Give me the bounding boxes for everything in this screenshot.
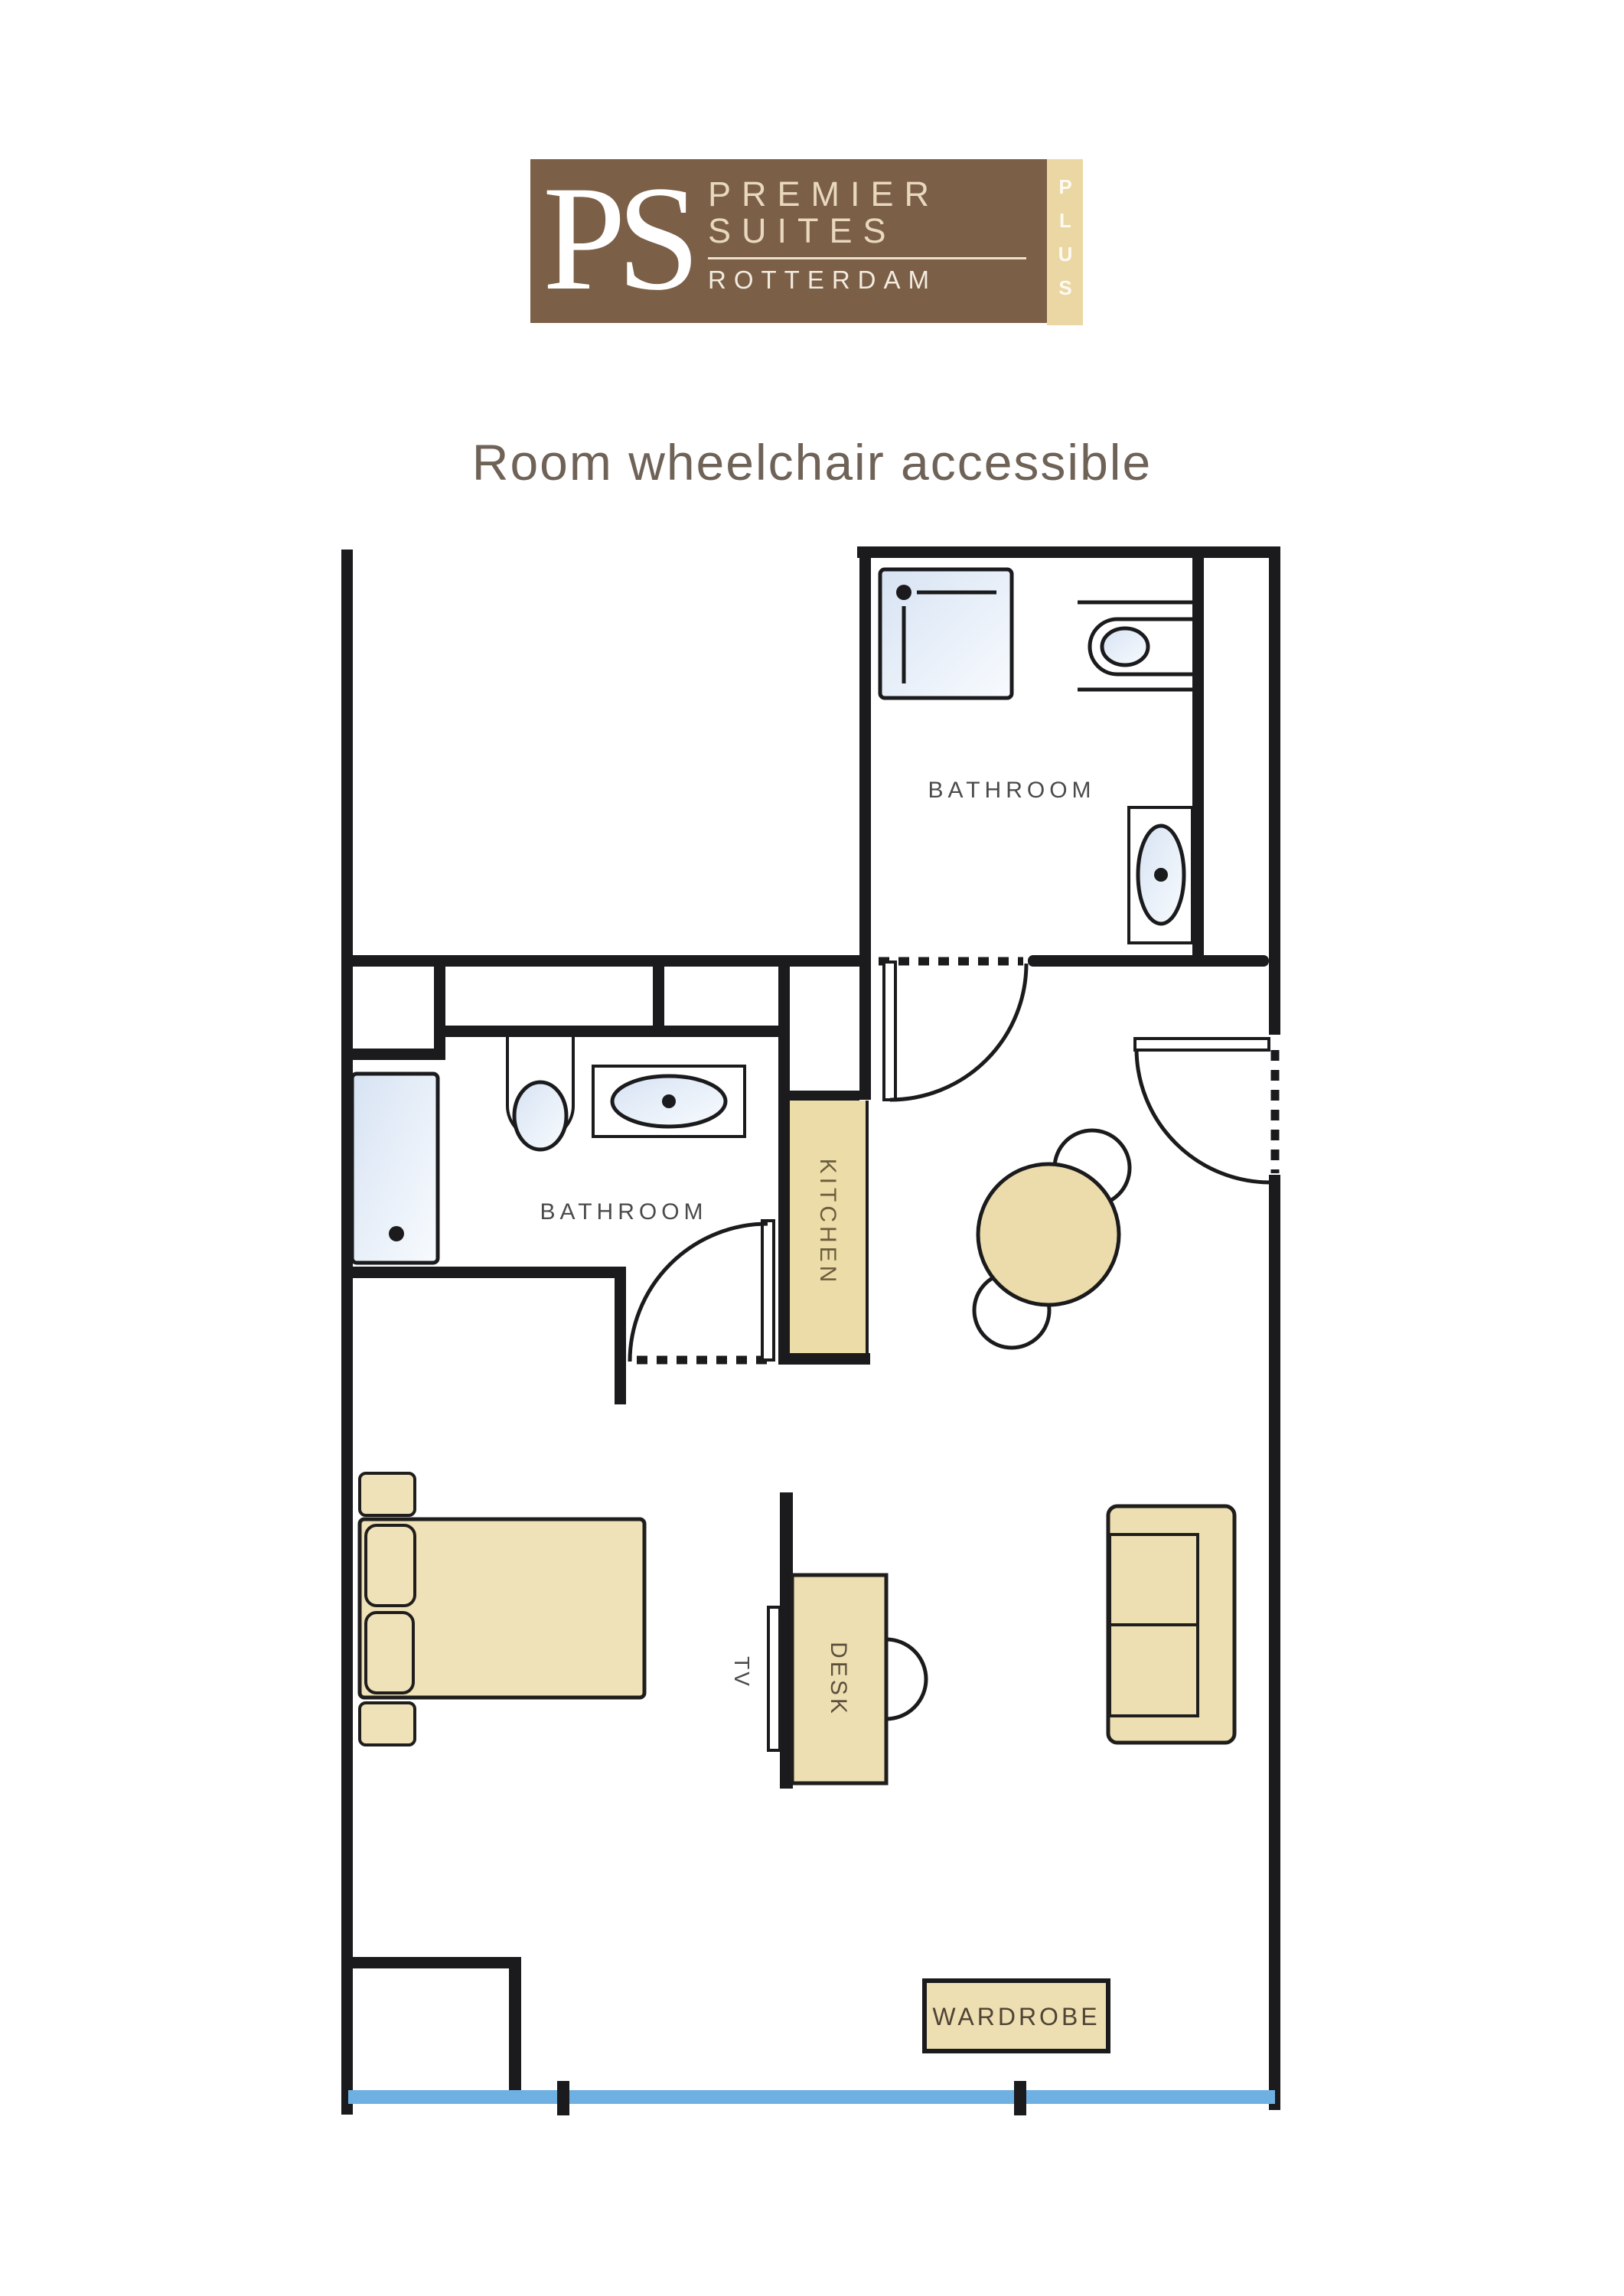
door-arc-bathroom-top <box>890 964 1026 1100</box>
page: PS PREMIER SUITES ROTTERDAM PLUS Room wh… <box>0 0 1624 2296</box>
wall-bathroom-top-left <box>859 546 871 1100</box>
wall-duct-divider <box>653 967 664 1026</box>
bed-group <box>360 1473 644 1745</box>
label-bathroom-middle: BATHROOM <box>540 1199 707 1225</box>
wall-corner-closet-top <box>353 1957 521 1968</box>
wall-corner-closet-right <box>509 1957 521 2092</box>
bathroom-mid-fixtures <box>352 1037 745 1263</box>
sink-mid-drain <box>662 1094 676 1108</box>
door-leaf-entrance <box>1135 1039 1269 1050</box>
pillow-top <box>366 1525 415 1606</box>
doors <box>630 962 1270 1362</box>
dining-set <box>974 1130 1130 1348</box>
label-desk: DESK <box>826 1642 851 1717</box>
nightstand-top <box>360 1473 415 1515</box>
wall-right-upper <box>1269 546 1280 1035</box>
wall-closet-bottom <box>341 1049 445 1060</box>
dashed-openings <box>637 961 1275 1360</box>
door-arc-entrance <box>1136 1049 1270 1182</box>
round-table-icon <box>978 1164 1119 1305</box>
wall-left-outer <box>341 550 353 2115</box>
label-wardrobe: WARDROBE <box>932 2003 1100 2030</box>
label-tv: TV <box>730 1656 754 1688</box>
door-leaf-bathroom-top <box>884 962 895 1100</box>
wall-bathroom-mid-top <box>445 1026 778 1037</box>
shower-mid-drain <box>389 1226 404 1241</box>
wall-bathroom-mid-bottom <box>341 1267 626 1278</box>
toilet-mid-bowl <box>514 1082 566 1150</box>
toilet-top-seat <box>1102 628 1148 665</box>
label-kitchen: KITCHEN <box>815 1159 840 1287</box>
wall-top-outer <box>857 546 1280 558</box>
door-leaf-bathroom-mid <box>762 1221 774 1360</box>
window-mullion-right <box>1014 2081 1026 2115</box>
door-arc-bathroom-mid <box>630 1224 768 1362</box>
floor-plan: BATHROOM BATHROOM KITCHEN TV DESK WARDRO… <box>0 0 1624 2296</box>
tv-desk-group <box>768 1492 926 1789</box>
window-band <box>348 2090 1275 2104</box>
wall-kitchen-bottom <box>778 1353 870 1365</box>
shower-top-head <box>896 585 911 600</box>
windows <box>348 2081 1275 2115</box>
wall-right-lower <box>1269 1175 1280 2110</box>
wall-stub-below-bathroom <box>615 1267 626 1404</box>
wall-kitchen-left <box>778 967 790 1355</box>
bathroom-top-fixtures <box>880 569 1192 943</box>
nightstand-bottom <box>360 1703 415 1745</box>
wall-kitchen-top <box>790 1091 859 1102</box>
wall-sink-separator <box>1192 558 1204 955</box>
wall-hall-top <box>341 955 871 967</box>
label-bathroom-top: BATHROOM <box>928 778 1095 803</box>
sink-top-drain <box>1154 868 1168 882</box>
tv-screen-icon <box>768 1607 780 1750</box>
window-mullion-left <box>557 2081 569 2115</box>
desk-chair-icon <box>886 1639 926 1719</box>
wall-closet-right <box>434 955 445 1060</box>
pillow-bottom <box>366 1613 413 1693</box>
sofa-group <box>1108 1506 1234 1743</box>
wall-bathroom-top-bottom <box>1028 955 1269 967</box>
